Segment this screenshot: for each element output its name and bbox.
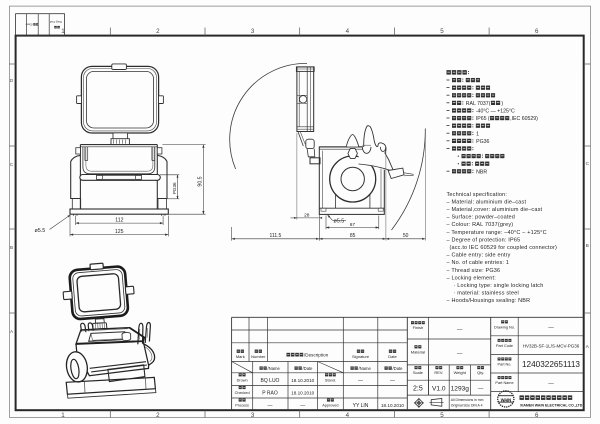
svg-text:/Date: /Date: [25, 22, 32, 26]
svg-text:1: 1: [61, 412, 65, 419]
svg-text:– Locking element:: – Locking element:: [447, 275, 497, 281]
svg-text:—: —: [300, 403, 305, 409]
svg-text:Approved: Approved: [322, 404, 338, 408]
svg-text:Weight: Weight: [454, 370, 467, 375]
svg-text:ø5.5: ø5.5: [334, 218, 345, 224]
svg-text:85: 85: [350, 233, 356, 239]
svg-text:3: 3: [251, 28, 255, 35]
svg-text:– Thread size: PG36: – Thread size: PG36: [447, 268, 501, 274]
svg-text:BQ LUO: BQ LUO: [261, 378, 280, 384]
svg-text:): ): [501, 101, 503, 107]
svg-text:REV.: REV.: [434, 370, 443, 375]
svg-text:—: —: [548, 325, 554, 331]
svg-text:PG36: PG36: [476, 139, 489, 145]
svg-text:/Description: /Description: [304, 353, 329, 358]
svg-text:Part Name: Part Name: [495, 381, 513, 385]
svg-text:– No. of cable entries: 1: – No. of cable entries: 1: [447, 260, 510, 266]
svg-text:5: 5: [440, 412, 444, 419]
svg-text:NBR: NBR: [476, 169, 487, 175]
svg-text:– Cable entry: side entry: – Cable entry: side entry: [447, 253, 511, 259]
svg-text:· material: stainless stee: · material: stainless steel: [454, 291, 519, 297]
svg-text:—: —: [390, 378, 395, 384]
svg-text:P RAO: P RAO: [262, 391, 278, 397]
svg-text:– Material: aluminium die–c: – Material: aluminium die–cast: [447, 199, 527, 205]
svg-text:Technical specification:: Technical specification:: [447, 192, 508, 198]
svg-text:Drown: Drown: [237, 378, 248, 382]
svg-text:Drawing No.: Drawing No.: [494, 325, 515, 329]
svg-text:HV32B-SF-1L/S-MCV-PG36: HV32B-SF-1L/S-MCV-PG36: [523, 344, 580, 349]
svg-text:—: —: [457, 351, 463, 357]
svg-text:6: 6: [535, 412, 539, 419]
svg-text:Part Code: Part Code: [496, 344, 513, 348]
svg-text:2:5: 2:5: [413, 386, 423, 393]
svg-text:Scale: Scale: [413, 370, 424, 375]
svg-text:Original Size DIN A 4: Original Size DIN A 4: [451, 403, 483, 407]
svg-text:50: 50: [403, 233, 409, 239]
svg-text:Date: Date: [388, 354, 397, 359]
svg-text:Checked: Checked: [235, 391, 250, 395]
svg-text:Number: Number: [251, 354, 266, 359]
svg-text:4: 4: [346, 412, 350, 419]
svg-text:V1.0: V1.0: [432, 386, 446, 393]
svg-text:– Colour: RAL 7037(grey): – Colour: RAL 7037(grey): [447, 222, 514, 228]
svg-text:1240322651113: 1240322651113: [522, 360, 580, 369]
svg-text:Finish: Finish: [413, 325, 424, 330]
svg-text:4: 4: [346, 28, 350, 35]
svg-text:· Locking type: single lo: · Locking type: single locking latch: [454, 283, 544, 289]
svg-text:—: —: [478, 386, 484, 392]
svg-text:Material: Material: [411, 349, 425, 354]
svg-text:18.10.2010: 18.10.2010: [291, 391, 314, 396]
svg-text:2: 2: [156, 412, 160, 419]
svg-text:(: (: [489, 101, 491, 107]
svg-text:PG36: PG36: [172, 182, 177, 194]
svg-text:IP65: IP65: [476, 116, 487, 122]
svg-text:28: 28: [304, 212, 310, 218]
svg-text:2: 2: [156, 28, 160, 35]
svg-text:(: (: [488, 116, 490, 122]
svg-text:Mark: Mark: [236, 354, 245, 359]
svg-text:/Name: /Name: [359, 366, 372, 371]
svg-text:112: 112: [115, 218, 123, 224]
svg-text:3: 3: [251, 412, 255, 419]
svg-text:,IEC 60529): ,IEC 60529): [510, 116, 538, 122]
svg-text:18.10.2010: 18.10.2010: [381, 403, 404, 408]
svg-text:– Surface: powder–coated: – Surface: powder–coated: [447, 215, 516, 221]
svg-text:(acc.to IEC 60529 for coup: (acc.to IEC 60529 for coupled connector): [450, 245, 557, 251]
svg-text:18.10.2010: 18.10.2010: [291, 378, 314, 383]
svg-text:Dwg.Cod: Dwg.Cod: [50, 20, 62, 24]
svg-text:/Name: /Name: [268, 366, 281, 371]
svg-text:Process: Process: [235, 404, 249, 408]
svg-text:5: 5: [440, 28, 444, 35]
svg-text:ø5.5: ø5.5: [35, 228, 46, 234]
svg-text:B: B: [10, 245, 13, 250]
svg-text:Stand.: Stand.: [325, 378, 336, 382]
svg-text:– Hoods/Housings sealing: N: – Hoods/Housings sealing: NBR: [447, 298, 531, 304]
svg-text:YY LIN: YY LIN: [353, 403, 369, 409]
svg-text:125: 125: [115, 229, 124, 235]
svg-text:—: —: [268, 403, 273, 409]
svg-text:—: —: [358, 378, 363, 384]
svg-text:All Dimensions in mm: All Dimensions in mm: [451, 398, 484, 402]
svg-text:– Material,cover: aluminium: – Material,cover: aluminium die–cast: [447, 207, 543, 213]
svg-text:– Temperature range: –40°: – Temperature range: –40°C – +125°C: [447, 230, 547, 236]
svg-text:67: 67: [350, 222, 356, 228]
svg-text:-40°C — +125°C: -40°C — +125°C: [476, 109, 515, 115]
svg-text:6: 6: [535, 28, 539, 35]
svg-text:/Date: /Date: [393, 366, 404, 371]
svg-text:90.5: 90.5: [198, 176, 204, 186]
svg-text:/Date: /Date: [303, 366, 314, 371]
svg-text:WAIN: WAIN: [501, 397, 512, 402]
svg-text:Qty.: Qty.: [477, 370, 484, 375]
svg-text:– Degree of protection: IP: – Degree of protection: IP65: [447, 237, 521, 243]
svg-text:XIAMEN WAIN ELECTRICAL CO.,LTD: XIAMEN WAIN ELECTRICAL CO.,LTD: [520, 404, 583, 408]
svg-text:Signature: Signature: [352, 354, 370, 359]
svg-text:—: —: [548, 381, 554, 387]
svg-text:1: 1: [476, 131, 479, 137]
svg-text:—: —: [457, 327, 463, 333]
svg-text:111.5: 111.5: [270, 233, 282, 239]
svg-text:RAL 7037: RAL 7037: [466, 101, 489, 107]
svg-text:B: B: [586, 243, 589, 248]
svg-text:Part No.: Part No.: [498, 362, 512, 366]
svg-text:1293g: 1293g: [451, 386, 470, 393]
